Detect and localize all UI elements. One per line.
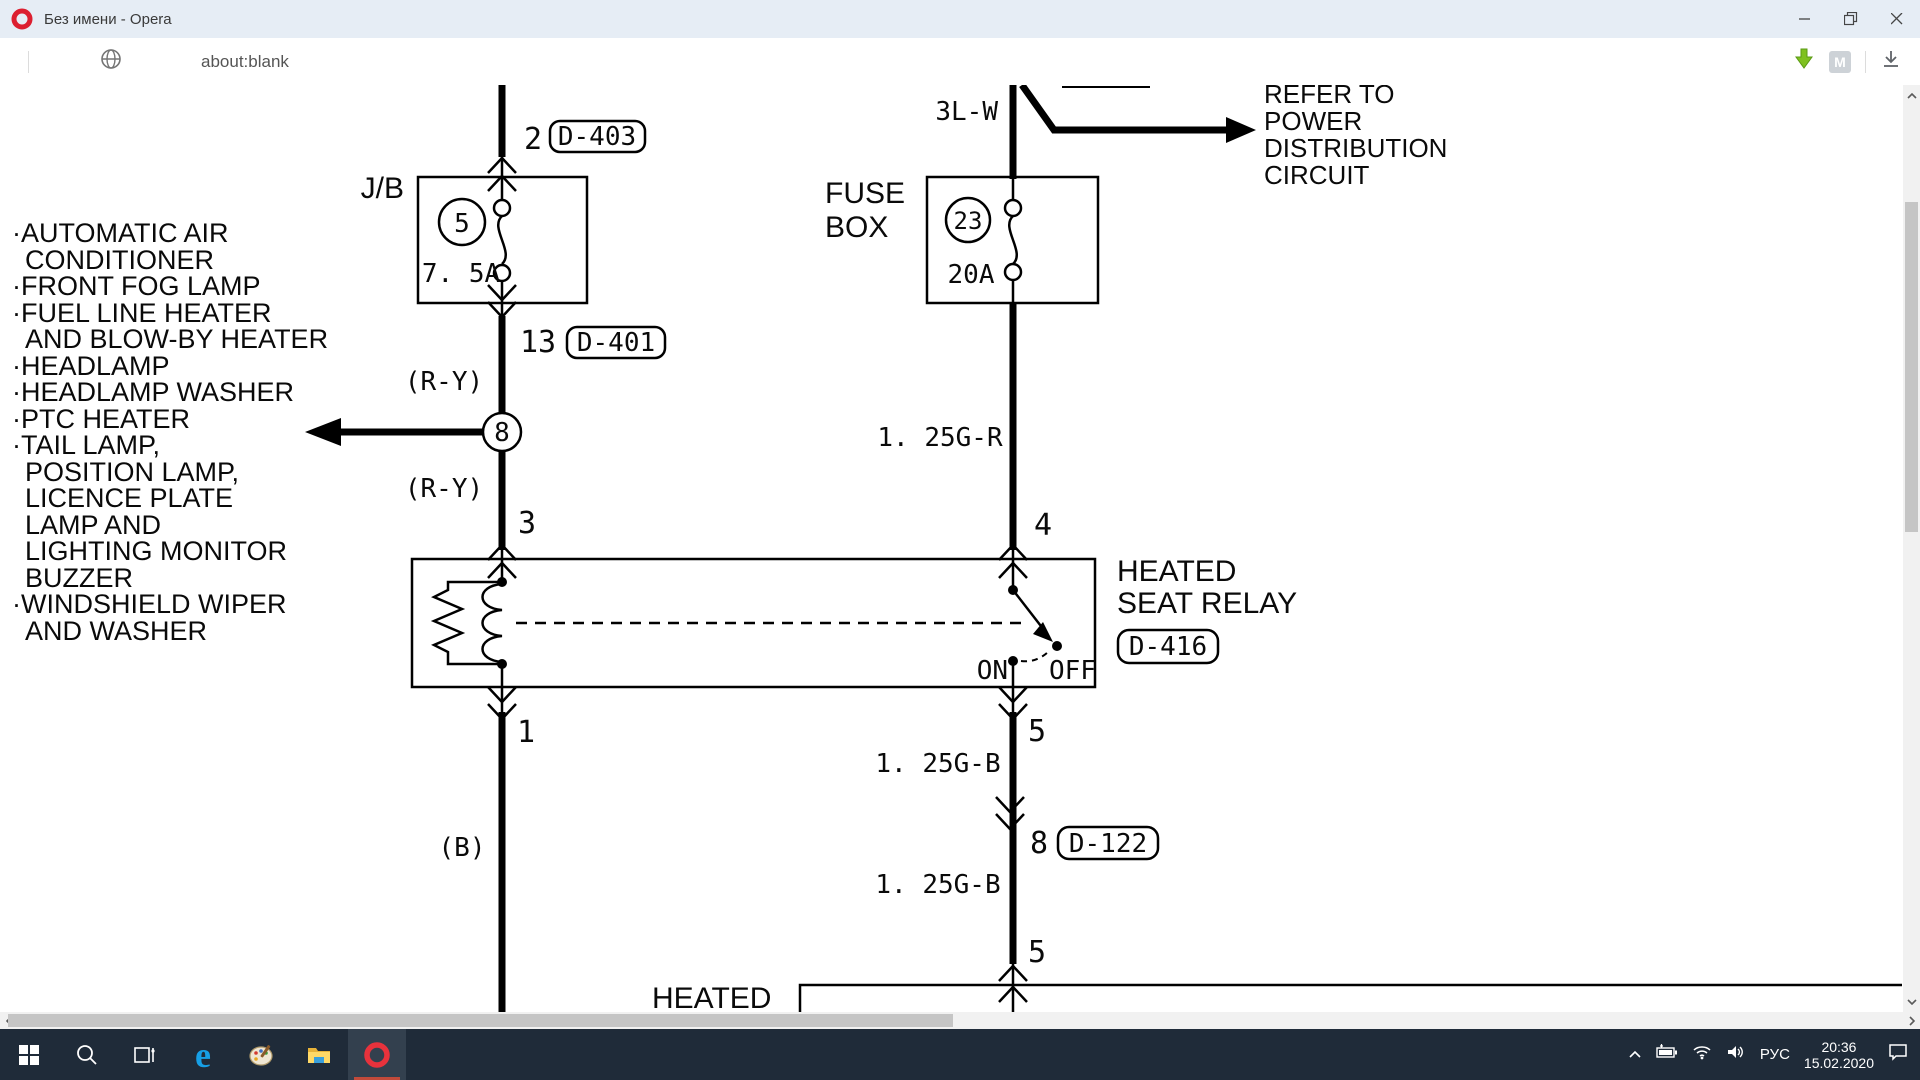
svg-text:5: 5 bbox=[1028, 714, 1046, 749]
svg-text:1. 25G-B: 1. 25G-B bbox=[875, 749, 1000, 779]
load-list: ·AUTOMATIC AIR CONDITIONER ·FRONT FOG LA… bbox=[12, 218, 328, 646]
scroll-up-arrow[interactable] bbox=[1903, 87, 1920, 104]
svg-text:POWER: POWER bbox=[1264, 106, 1362, 136]
toolbar-separator-2 bbox=[1865, 51, 1866, 73]
jb-branch: 2 D-403 J/B 5 7. 5A 13 D-401 (R-Y) bbox=[305, 85, 665, 582]
address-bar[interactable]: about:blank M bbox=[0, 38, 1920, 85]
svg-text:(R-Y): (R-Y) bbox=[405, 367, 483, 397]
extension-m-badge[interactable]: M bbox=[1829, 51, 1851, 73]
battery-icon[interactable] bbox=[1656, 1044, 1678, 1065]
svg-text:OFF: OFF bbox=[1049, 656, 1096, 686]
svg-text:·AUTOMATIC AIR: ·AUTOMATIC AIR bbox=[12, 218, 229, 248]
svg-text:CIRCUIT: CIRCUIT bbox=[1264, 160, 1370, 190]
action-center-icon[interactable] bbox=[1888, 1043, 1908, 1066]
svg-text:LICENCE PLATE: LICENCE PLATE bbox=[25, 483, 233, 513]
clock[interactable]: 20:36 15.02.2020 bbox=[1804, 1039, 1874, 1071]
svg-text:(B): (B) bbox=[439, 833, 486, 863]
heated-seat-branch: 5 1. 25G-B 8 D-122 1. 25G-B 5 HEATED bbox=[652, 687, 1902, 1012]
svg-text:3: 3 bbox=[518, 506, 536, 541]
svg-text:D-401: D-401 bbox=[577, 328, 655, 358]
scroll-down-arrow[interactable] bbox=[1903, 993, 1920, 1010]
svg-text:AND BLOW-BY HEATER: AND BLOW-BY HEATER bbox=[25, 324, 328, 354]
toolbar-separator bbox=[28, 51, 29, 73]
opera-title-bar: Без имени - Opera bbox=[0, 0, 1920, 38]
tray-date: 15.02.2020 bbox=[1804, 1055, 1874, 1071]
wiring-diagram-svg: ·AUTOMATIC AIR CONDITIONER ·FRONT FOG LA… bbox=[0, 85, 1920, 1012]
download-complete-icon[interactable] bbox=[1793, 48, 1815, 75]
minimize-button[interactable] bbox=[1782, 0, 1828, 38]
url-text[interactable]: about:blank bbox=[201, 52, 289, 72]
svg-text:1. 25G-B: 1. 25G-B bbox=[875, 870, 1000, 900]
paint-button[interactable] bbox=[232, 1029, 290, 1080]
fusebox-branch: REFER TO POWER DISTRIBUTION CIRCUIT 3L-W… bbox=[825, 85, 1447, 590]
svg-text:HEATED: HEATED bbox=[652, 982, 771, 1012]
svg-text:·HEADLAMP WASHER: ·HEADLAMP WASHER bbox=[12, 377, 294, 407]
svg-text:FUSE: FUSE bbox=[825, 177, 905, 210]
scroll-right-arrow[interactable] bbox=[1903, 1012, 1920, 1029]
system-tray: РУС 20:36 15.02.2020 bbox=[1628, 1029, 1920, 1080]
ground-branch: 1 (B) bbox=[439, 687, 536, 1012]
horizontal-scrollbar[interactable] bbox=[0, 1012, 1920, 1029]
task-view-icon bbox=[133, 1043, 157, 1067]
volume-icon[interactable] bbox=[1726, 1044, 1746, 1065]
opera-icon bbox=[364, 1042, 390, 1068]
svg-text:13: 13 bbox=[520, 325, 556, 360]
language-indicator[interactable]: РУС bbox=[1760, 1046, 1790, 1063]
svg-text:D-416: D-416 bbox=[1129, 632, 1207, 662]
svg-text:D-122: D-122 bbox=[1069, 829, 1147, 859]
svg-text:D-403: D-403 bbox=[558, 122, 636, 152]
svg-text:AND WASHER: AND WASHER bbox=[25, 616, 207, 646]
svg-text:8: 8 bbox=[1030, 826, 1048, 861]
edge-button[interactable]: e bbox=[174, 1029, 232, 1080]
svg-text:LIGHTING MONITOR: LIGHTING MONITOR bbox=[25, 536, 287, 566]
search-icon bbox=[75, 1043, 99, 1067]
tray-time: 20:36 bbox=[1821, 1039, 1856, 1055]
windows-taskbar: e bbox=[0, 1029, 1920, 1080]
edge-icon: e bbox=[195, 1037, 211, 1073]
close-button[interactable] bbox=[1874, 0, 1920, 38]
heated-seat-relay: ON OFF HEATED SEAT RELAY D-416 bbox=[412, 555, 1297, 687]
tray-chevron-up-icon[interactable] bbox=[1628, 1046, 1642, 1064]
wifi-icon[interactable] bbox=[1692, 1044, 1712, 1065]
window-title: Без имени - Opera bbox=[44, 11, 172, 28]
downloads-tray-icon[interactable] bbox=[1880, 48, 1902, 75]
svg-text:(R-Y): (R-Y) bbox=[405, 474, 483, 504]
start-button[interactable] bbox=[0, 1029, 58, 1080]
svg-text:DISTRIBUTION: DISTRIBUTION bbox=[1264, 133, 1447, 163]
svg-text:3L-W: 3L-W bbox=[935, 97, 998, 127]
svg-text:J/B: J/B bbox=[361, 172, 404, 205]
file-explorer-button[interactable] bbox=[290, 1029, 348, 1080]
svg-text:1. 25G-R: 1. 25G-R bbox=[877, 423, 1003, 453]
desktop: Без имени - Opera about: bbox=[0, 0, 1920, 1080]
svg-text:ON: ON bbox=[977, 656, 1008, 686]
folder-icon bbox=[306, 1042, 332, 1068]
search-button[interactable] bbox=[58, 1029, 116, 1080]
page-content-wiring-diagram: ·AUTOMATIC AIR CONDITIONER ·FRONT FOG LA… bbox=[0, 85, 1920, 1012]
svg-text:SEAT RELAY: SEAT RELAY bbox=[1117, 587, 1297, 620]
svg-text:BOX: BOX bbox=[825, 211, 888, 244]
svg-text:23: 23 bbox=[954, 207, 983, 235]
svg-text:2: 2 bbox=[524, 122, 542, 157]
task-view-button[interactable] bbox=[116, 1029, 174, 1080]
svg-text:20A: 20A bbox=[948, 260, 995, 290]
windows-logo-icon bbox=[18, 1044, 40, 1066]
globe-icon bbox=[99, 47, 123, 76]
opera-logo-icon bbox=[10, 7, 34, 31]
vertical-scrollbar[interactable] bbox=[1903, 85, 1920, 1012]
opera-taskbar-button[interactable] bbox=[348, 1029, 406, 1080]
svg-text:·TAIL LAMP,: ·TAIL LAMP, bbox=[12, 430, 160, 460]
svg-text:8: 8 bbox=[494, 418, 510, 448]
vertical-scroll-thumb[interactable] bbox=[1905, 202, 1918, 532]
svg-text:HEATED: HEATED bbox=[1117, 555, 1236, 588]
restore-button[interactable] bbox=[1828, 0, 1874, 38]
svg-text:1: 1 bbox=[517, 715, 535, 750]
svg-text:5: 5 bbox=[1028, 935, 1046, 970]
horizontal-scroll-thumb[interactable] bbox=[8, 1014, 953, 1027]
paint-palette-icon bbox=[248, 1042, 274, 1068]
svg-text:5: 5 bbox=[454, 209, 470, 239]
svg-text:·WINDSHIELD WIPER: ·WINDSHIELD WIPER bbox=[12, 589, 287, 619]
svg-text:·FRONT FOG LAMP: ·FRONT FOG LAMP bbox=[12, 271, 261, 301]
svg-text:4: 4 bbox=[1034, 508, 1052, 543]
